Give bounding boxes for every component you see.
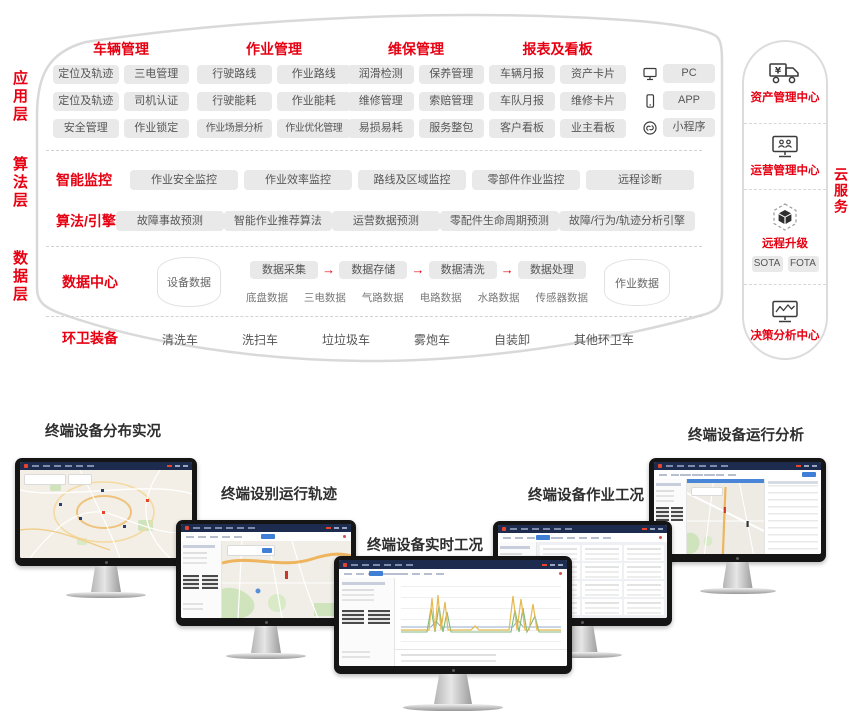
sidebar-mini-table <box>656 507 669 521</box>
monitor-stand-base <box>700 588 776 594</box>
city-map <box>20 470 192 558</box>
sidebar-mini-table <box>342 610 364 624</box>
feature-chip: 司机认证 <box>124 92 190 111</box>
sidebar-lines <box>342 656 370 658</box>
separator-algo-data <box>46 246 702 247</box>
monitor-stand-base <box>66 592 146 598</box>
operation-monitor-icon <box>770 135 800 159</box>
map-filter-box <box>68 474 92 485</box>
pipeline-step: 数据处理 <box>518 261 586 279</box>
active-tab <box>802 472 816 477</box>
monitor-stand-neck <box>434 674 472 704</box>
data-center-title: 数据中心 <box>62 272 118 292</box>
monitor-bezel <box>334 556 572 674</box>
feature-chip: 作业能耗 <box>277 92 352 111</box>
sidebar-title-bar <box>656 483 681 486</box>
tab-dashes <box>659 474 667 476</box>
data-pipeline: 数据采集 → 数据存储 → 数据清洗 → 数据处理 <box>250 261 586 279</box>
equipment-list: 清洗车 洗扫车 垃垃圾车 雾炮车 自装卸 其他环卫车 <box>162 331 634 348</box>
topbar-icons <box>183 465 188 467</box>
monitor-caption: 终端设备分布实况 <box>45 420 161 441</box>
algo-chip: 运营数据预测 <box>332 211 440 231</box>
monitor-stand-base <box>403 704 503 711</box>
app-logo <box>185 526 189 530</box>
map-search-box <box>24 474 66 485</box>
chart-footer-panel <box>395 649 567 666</box>
platform-row-app: APP <box>643 91 715 110</box>
device-data-store: 设备数据 <box>157 257 221 307</box>
dashboard-screen <box>20 462 192 558</box>
equipment-item: 垃垃圾车 <box>322 331 370 348</box>
group-title: 维保管理 <box>348 40 484 58</box>
dashboard-topbar <box>498 525 667 533</box>
platform-chip: APP <box>663 91 715 110</box>
feature-chip: 行驶路线 <box>197 65 272 84</box>
group-title: 报表及看板 <box>489 40 626 58</box>
monitor-analysis-map-table <box>649 458 826 594</box>
data-source: 传感器数据 <box>535 290 588 305</box>
tab-dashes <box>344 573 352 575</box>
signal-line-chart <box>401 586 561 642</box>
data-source: 三电数据 <box>304 290 346 305</box>
asset-truck-icon: ¥ <box>768 60 802 86</box>
menu-dashes <box>510 528 517 530</box>
status-card <box>582 563 622 579</box>
data-source: 气路数据 <box>362 290 404 305</box>
monitor-bezel <box>15 458 197 566</box>
arrow-right-icon: → <box>501 261 514 279</box>
sidebar-lines <box>342 589 374 591</box>
dashboard-topbar <box>181 524 351 532</box>
status-card <box>582 599 622 615</box>
feature-chip: 车辆月报 <box>489 65 555 84</box>
app-logo <box>343 563 347 567</box>
app-logo <box>24 464 28 468</box>
feature-chip: 作业路线 <box>277 65 352 84</box>
data-source: 电路数据 <box>420 290 462 305</box>
feature-chip: 易损易耗 <box>348 119 414 138</box>
cloud-section-label: 远程升级 <box>762 235 808 251</box>
decision-analysis-section: 决策分析中心 <box>744 284 826 358</box>
search-button <box>262 548 272 553</box>
feature-chip: 三电管理 <box>124 65 190 84</box>
feature-chip: 定位及轨迹 <box>53 92 119 111</box>
group-title: 作业管理 <box>197 40 351 58</box>
analysis-table-panel <box>764 479 821 554</box>
equipment-item: 其他环卫车 <box>574 331 634 348</box>
monitor-stand-base <box>226 653 306 659</box>
group-reports-dashboards: 报表及看板 车辆月报资产卡片 车队月报维修卡片 客户看板业主看板 <box>489 40 626 146</box>
monitor-stand-neck <box>568 626 598 652</box>
monitor-caption: 终端设备作业工况 <box>528 484 644 505</box>
menu-dashes <box>666 465 673 467</box>
sidebar-mini-table <box>671 507 684 521</box>
equipment-item: 清洗车 <box>162 331 198 348</box>
sidebar-lines <box>500 553 522 555</box>
tab-dashes <box>186 536 194 538</box>
remote-upgrade-section: 远程升级 SOTA FOTA <box>744 189 826 284</box>
menu-dashes <box>32 465 39 467</box>
ota-chip-list: SOTA FOTA <box>752 256 819 272</box>
platform-row-pc: PC <box>643 64 715 83</box>
monitor-chin <box>181 618 351 626</box>
feature-chip: 作业锁定 <box>124 119 190 138</box>
status-card <box>624 581 664 597</box>
cloud-service-side-label: 云服务 <box>831 167 851 215</box>
tab-dashes <box>555 537 563 539</box>
sidebar-mini-table <box>368 610 390 624</box>
layer-label-algorithm: 算法层 <box>9 156 30 210</box>
algo-chip: 路线及区域监控 <box>358 170 466 190</box>
dashboard-screen <box>654 462 821 554</box>
monitor-bezel <box>649 458 826 562</box>
sidebar-title-bar <box>342 582 385 585</box>
sidebar-lines <box>183 608 203 610</box>
pipeline-step: 数据存储 <box>339 261 407 279</box>
algo-chip: 零部件作业监控 <box>472 170 580 190</box>
ota-cube-icon <box>770 202 800 232</box>
analytics-monitor-icon <box>770 300 800 324</box>
alert-dot <box>659 536 662 539</box>
equipment-title: 环卫装备 <box>62 328 118 348</box>
group-maintenance-management: 维保管理 润滑检测保养管理 维修管理索赔管理 易损易耗服务整包 <box>348 40 484 146</box>
map-search-box <box>691 487 723 496</box>
pipeline-step: 数据清洗 <box>429 261 497 279</box>
group-vehicle-management: 车辆管理 定位及轨迹三电管理 定位及轨迹司机认证 安全管理作业锁定 <box>53 40 189 146</box>
monitor-stand-neck <box>251 626 281 653</box>
equipment-item: 自装卸 <box>494 331 530 348</box>
tab-dashes <box>503 537 511 539</box>
dashboard-body <box>654 479 821 554</box>
dashboard-screen <box>339 560 567 666</box>
algo-chip: 作业效率监控 <box>244 170 352 190</box>
separator-app-algo <box>46 150 702 151</box>
feature-chip: 安全管理 <box>53 119 119 138</box>
feature-chip: 作业优化管理 <box>277 119 352 138</box>
monitor-caption: 终端设备实时工况 <box>367 534 483 555</box>
cloud-services-panel: ¥ 资产管理中心 运营管理中心 <box>742 40 828 360</box>
algo-chip: 故障/行为/轨迹分析引擎 <box>559 211 695 231</box>
algo-row-monitoring: 智能监控 作业安全监控 作业效率监控 路线及区域监控 零部件作业监控 远程诊断 <box>56 170 694 190</box>
feature-chip: 业主看板 <box>560 119 626 138</box>
data-source: 底盘数据 <box>246 290 288 305</box>
asset-management-section: ¥ 资产管理中心 <box>744 42 826 123</box>
monitor-chin <box>339 666 567 674</box>
topbar-icons <box>658 528 663 530</box>
app-logo <box>502 527 506 531</box>
miniprogram-icon <box>643 121 657 135</box>
active-tab <box>536 535 550 540</box>
monitor-chin <box>654 554 821 562</box>
monitor-caption: 终端设备运行分析 <box>688 424 804 445</box>
dashboard-topbar <box>20 462 192 470</box>
algo-chip: 智能作业推荐算法 <box>224 211 332 231</box>
algo-chip-list: 作业安全监控 作业效率监控 路线及区域监控 零部件作业监控 远程诊断 <box>130 170 694 190</box>
menu-dashes <box>193 527 200 529</box>
sidebar-mini-table <box>183 575 199 589</box>
brand-logo-dot <box>265 621 268 624</box>
dashboard-topbar <box>339 560 567 569</box>
dashboard-screen <box>181 524 351 618</box>
feature-chip: 润滑检测 <box>348 65 414 84</box>
arrow-right-icon: → <box>322 261 335 279</box>
brand-logo-dot <box>581 621 584 624</box>
brand-logo-dot <box>452 669 455 672</box>
layer-label-application: 应用层 <box>9 70 30 124</box>
equipment-item: 雾炮车 <box>414 331 450 348</box>
trajectory-map <box>222 541 351 618</box>
feature-chip: 维修管理 <box>348 92 414 111</box>
footer-lines <box>401 654 496 656</box>
topbar-icons <box>812 465 817 467</box>
algo-row-engines: 算法/引擎 故障事故预测 智能作业推荐算法 运营数据预测 零配件生命周期预测 故… <box>56 211 694 231</box>
data-source-list: 底盘数据 三电数据 气路数据 电路数据 水路数据 传感器数据 <box>246 290 588 305</box>
svg-text:¥: ¥ <box>775 66 782 76</box>
monitor-chin <box>20 558 192 566</box>
algo-row-title: 智能监控 <box>56 170 130 190</box>
brand-logo-dot <box>736 557 739 560</box>
status-card <box>624 599 664 615</box>
monitor-trajectory-map <box>176 520 356 659</box>
dashboard-body <box>339 578 567 666</box>
group-title: 车辆管理 <box>53 40 189 58</box>
brand-logo-dot <box>105 561 108 564</box>
alert-dot <box>343 535 346 538</box>
dashboard-sidebar <box>181 541 222 618</box>
active-tab <box>369 571 383 576</box>
tab-dashes <box>388 573 396 575</box>
data-source: 水路数据 <box>478 290 520 305</box>
feature-chip: 作业场景分析 <box>197 119 272 138</box>
algo-row-title: 算法/引擎 <box>56 211 116 231</box>
sidebar-title-bar <box>500 546 530 549</box>
monitor-realtime-charts <box>334 556 572 711</box>
topbar-icons <box>342 527 347 529</box>
status-card <box>624 563 664 579</box>
sidebar-lines <box>656 490 675 492</box>
cloud-section-label: 资产管理中心 <box>751 89 820 105</box>
group-operation-management: 作业管理 行驶路线作业路线 行驶能耗作业能耗 作业场景分析作业优化管理 <box>197 40 351 146</box>
feature-chip: 定位及轨迹 <box>53 65 119 84</box>
arrow-right-icon: → <box>411 261 424 279</box>
operation-management-section: 运营管理中心 <box>744 123 826 189</box>
algo-chip-list: 故障事故预测 智能作业推荐算法 运营数据预测 零配件生命周期预测 故障/行为/轨… <box>116 211 695 231</box>
ota-chip: SOTA <box>752 256 783 272</box>
feature-chip: 车队月报 <box>489 92 555 111</box>
algo-chip: 零配件生命周期预测 <box>440 211 559 231</box>
analysis-map <box>687 479 764 554</box>
feature-chip: 资产卡片 <box>560 65 626 84</box>
feature-chip: 维修卡片 <box>560 92 626 111</box>
feature-chip: 客户看板 <box>489 119 555 138</box>
monitor-caption: 终端设别运行轨迹 <box>221 483 337 504</box>
topbar-icons <box>558 564 563 566</box>
smart-sanitation-platform-diagram: 应用层 算法层 数据层 车辆管理 定位及轨迹三电管理 定位及轨迹司机认证 安全管… <box>0 0 851 715</box>
feature-chip: 索赔管理 <box>419 92 485 111</box>
pipeline-step: 数据采集 <box>250 261 318 279</box>
monitor-bezel <box>176 520 356 626</box>
algo-chip: 远程诊断 <box>586 170 694 190</box>
cloud-section-label: 运营管理中心 <box>751 162 820 178</box>
sidebar-title-bar <box>183 545 214 548</box>
feature-chip: 服务整包 <box>419 119 485 138</box>
active-tab <box>261 534 275 539</box>
platform-chip: 小程序 <box>663 118 715 137</box>
feature-chip: 保养管理 <box>419 65 485 84</box>
job-data-store: 作业数据 <box>604 259 670 306</box>
sidebar-mini-table <box>202 575 218 589</box>
chart-panel <box>395 578 567 666</box>
dashboard-sidebar <box>339 578 395 666</box>
platform-row-miniprogram: 小程序 <box>643 118 715 137</box>
status-card <box>624 545 664 561</box>
separator-data-equipment <box>46 316 702 317</box>
map-search-box <box>227 545 275 556</box>
dashboard-body <box>181 541 351 618</box>
dashboard-topbar <box>654 462 821 470</box>
platform-chip: PC <box>663 64 715 83</box>
algo-chip: 作业安全监控 <box>130 170 238 190</box>
status-card <box>582 581 622 597</box>
monitor-stand-neck <box>723 562 753 588</box>
cloud-section-label: 决策分析中心 <box>751 327 820 343</box>
table-header-bar <box>768 481 818 484</box>
table-rows <box>768 485 818 551</box>
smartphone-icon <box>643 94 657 108</box>
monitor-stand-neck <box>91 566 121 592</box>
algo-chip: 故障事故预测 <box>116 211 224 231</box>
feature-chip: 行驶能耗 <box>197 92 272 111</box>
app-logo <box>658 464 662 468</box>
status-card <box>582 545 622 561</box>
client-platforms: PC APP 小程序 <box>643 64 715 145</box>
menu-dashes <box>351 564 358 566</box>
equipment-item: 洗扫车 <box>242 331 278 348</box>
ota-chip: FOTA <box>788 256 819 272</box>
desktop-icon <box>643 67 657 81</box>
tab-dashes <box>680 474 688 476</box>
layer-label-data: 数据层 <box>9 250 30 304</box>
sidebar-lines <box>183 552 206 554</box>
alert-dot <box>559 572 562 575</box>
monitor-distribution-map <box>15 458 197 598</box>
